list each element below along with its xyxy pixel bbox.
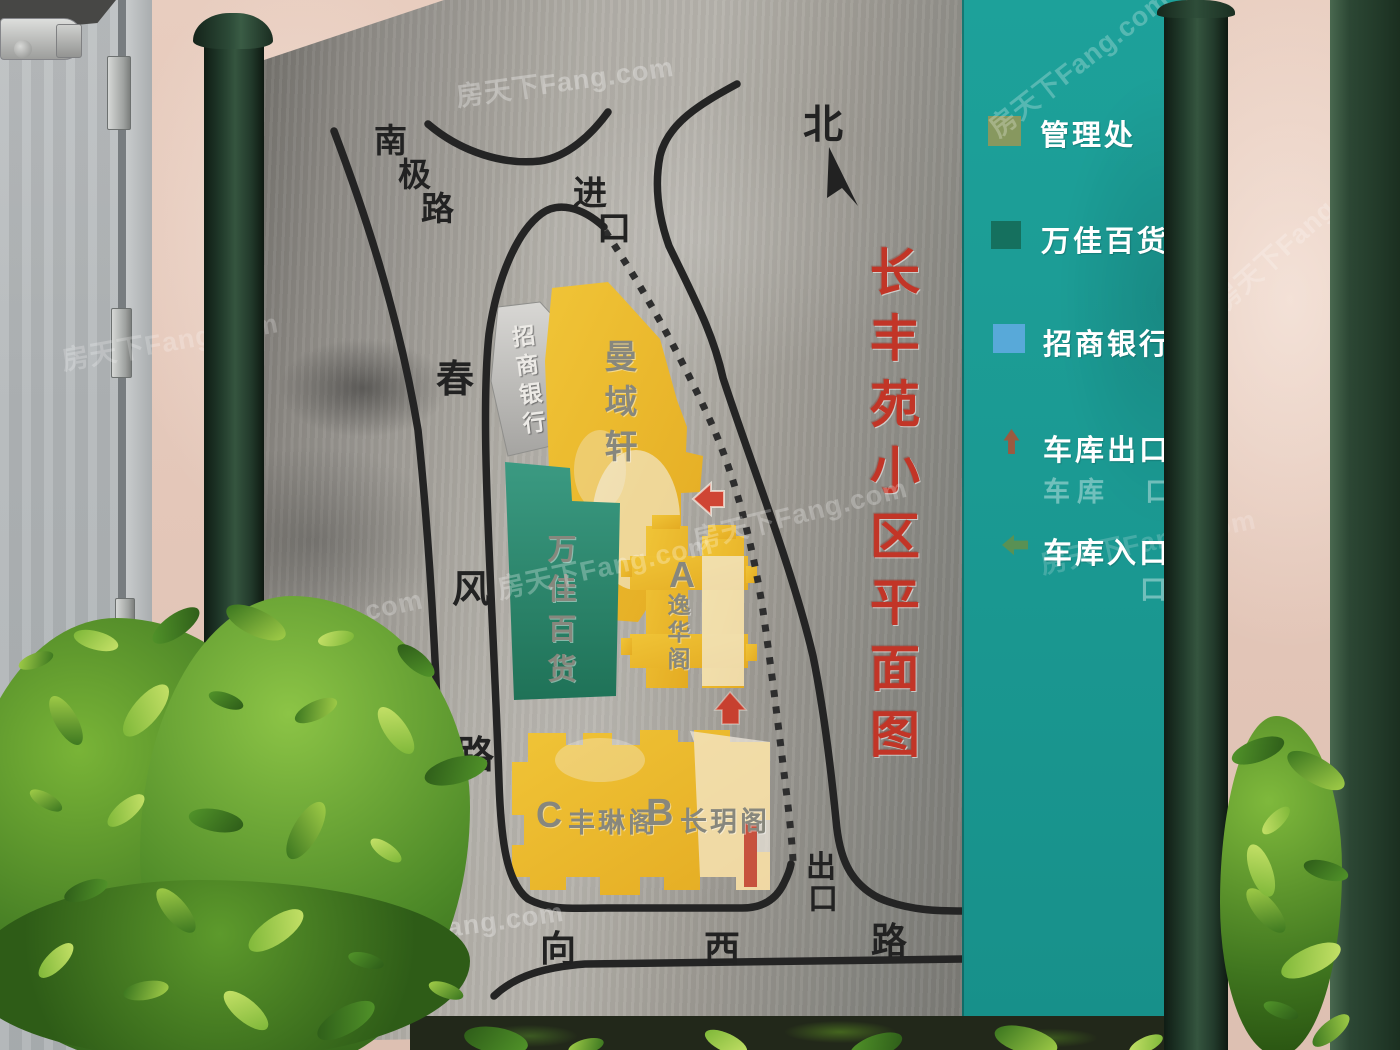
north-label: 北 — [803, 92, 843, 150]
road-top-arc — [428, 112, 608, 162]
photo-of-community-map-sign: 南 极 路 进 口 北 春 风 路 向 西 路 出 口 长丰苑小区平面图 招商银… — [0, 0, 1400, 1050]
ground-strip — [410, 1016, 1200, 1050]
road-label-xiangxi-2: 西 — [704, 920, 740, 972]
sign-post-right — [1164, 8, 1228, 1050]
road-label-chunfeng-2: 风 — [452, 558, 490, 613]
road-label-nanji-3: 路 — [421, 182, 454, 230]
road-label-entrance-2: 口 — [597, 201, 631, 250]
road-label-xiangxi-3: 路 — [871, 912, 907, 964]
block-b-name: 长玥阁 — [680, 800, 770, 839]
legend-swatch-wanjia — [991, 221, 1021, 249]
north-arrow-icon — [827, 147, 858, 206]
garage-entrance-arrow-icon — [715, 692, 746, 724]
legend-label-management: 管理处 — [1040, 112, 1136, 154]
building-label-manyuxuan: 曼域轩 — [603, 334, 639, 469]
legend-swatch-bank — [993, 324, 1025, 353]
legend-label-wanjia: 万佳百货 — [1041, 218, 1169, 260]
road-label-exit-2: 口 — [808, 874, 838, 918]
bush-right — [1220, 716, 1342, 1050]
legend-panel — [962, 0, 1186, 1032]
road-label-chunfeng-1: 春 — [436, 348, 474, 403]
bush-left — [0, 880, 470, 1050]
legend-label-bank: 招商银行 — [1043, 321, 1171, 363]
block-b-letter: B — [646, 792, 673, 835]
block-a-name: 逸华阁 — [666, 592, 692, 673]
sign-post-right-cap — [1157, 0, 1235, 18]
block-c-letter: C — [536, 794, 562, 836]
legend-ghost-text-1: 车库 口 — [1043, 470, 1179, 509]
block-c-name: 丰琳阁 — [568, 801, 658, 840]
legend-label-garage-exit: 车库出口 — [1043, 427, 1171, 469]
